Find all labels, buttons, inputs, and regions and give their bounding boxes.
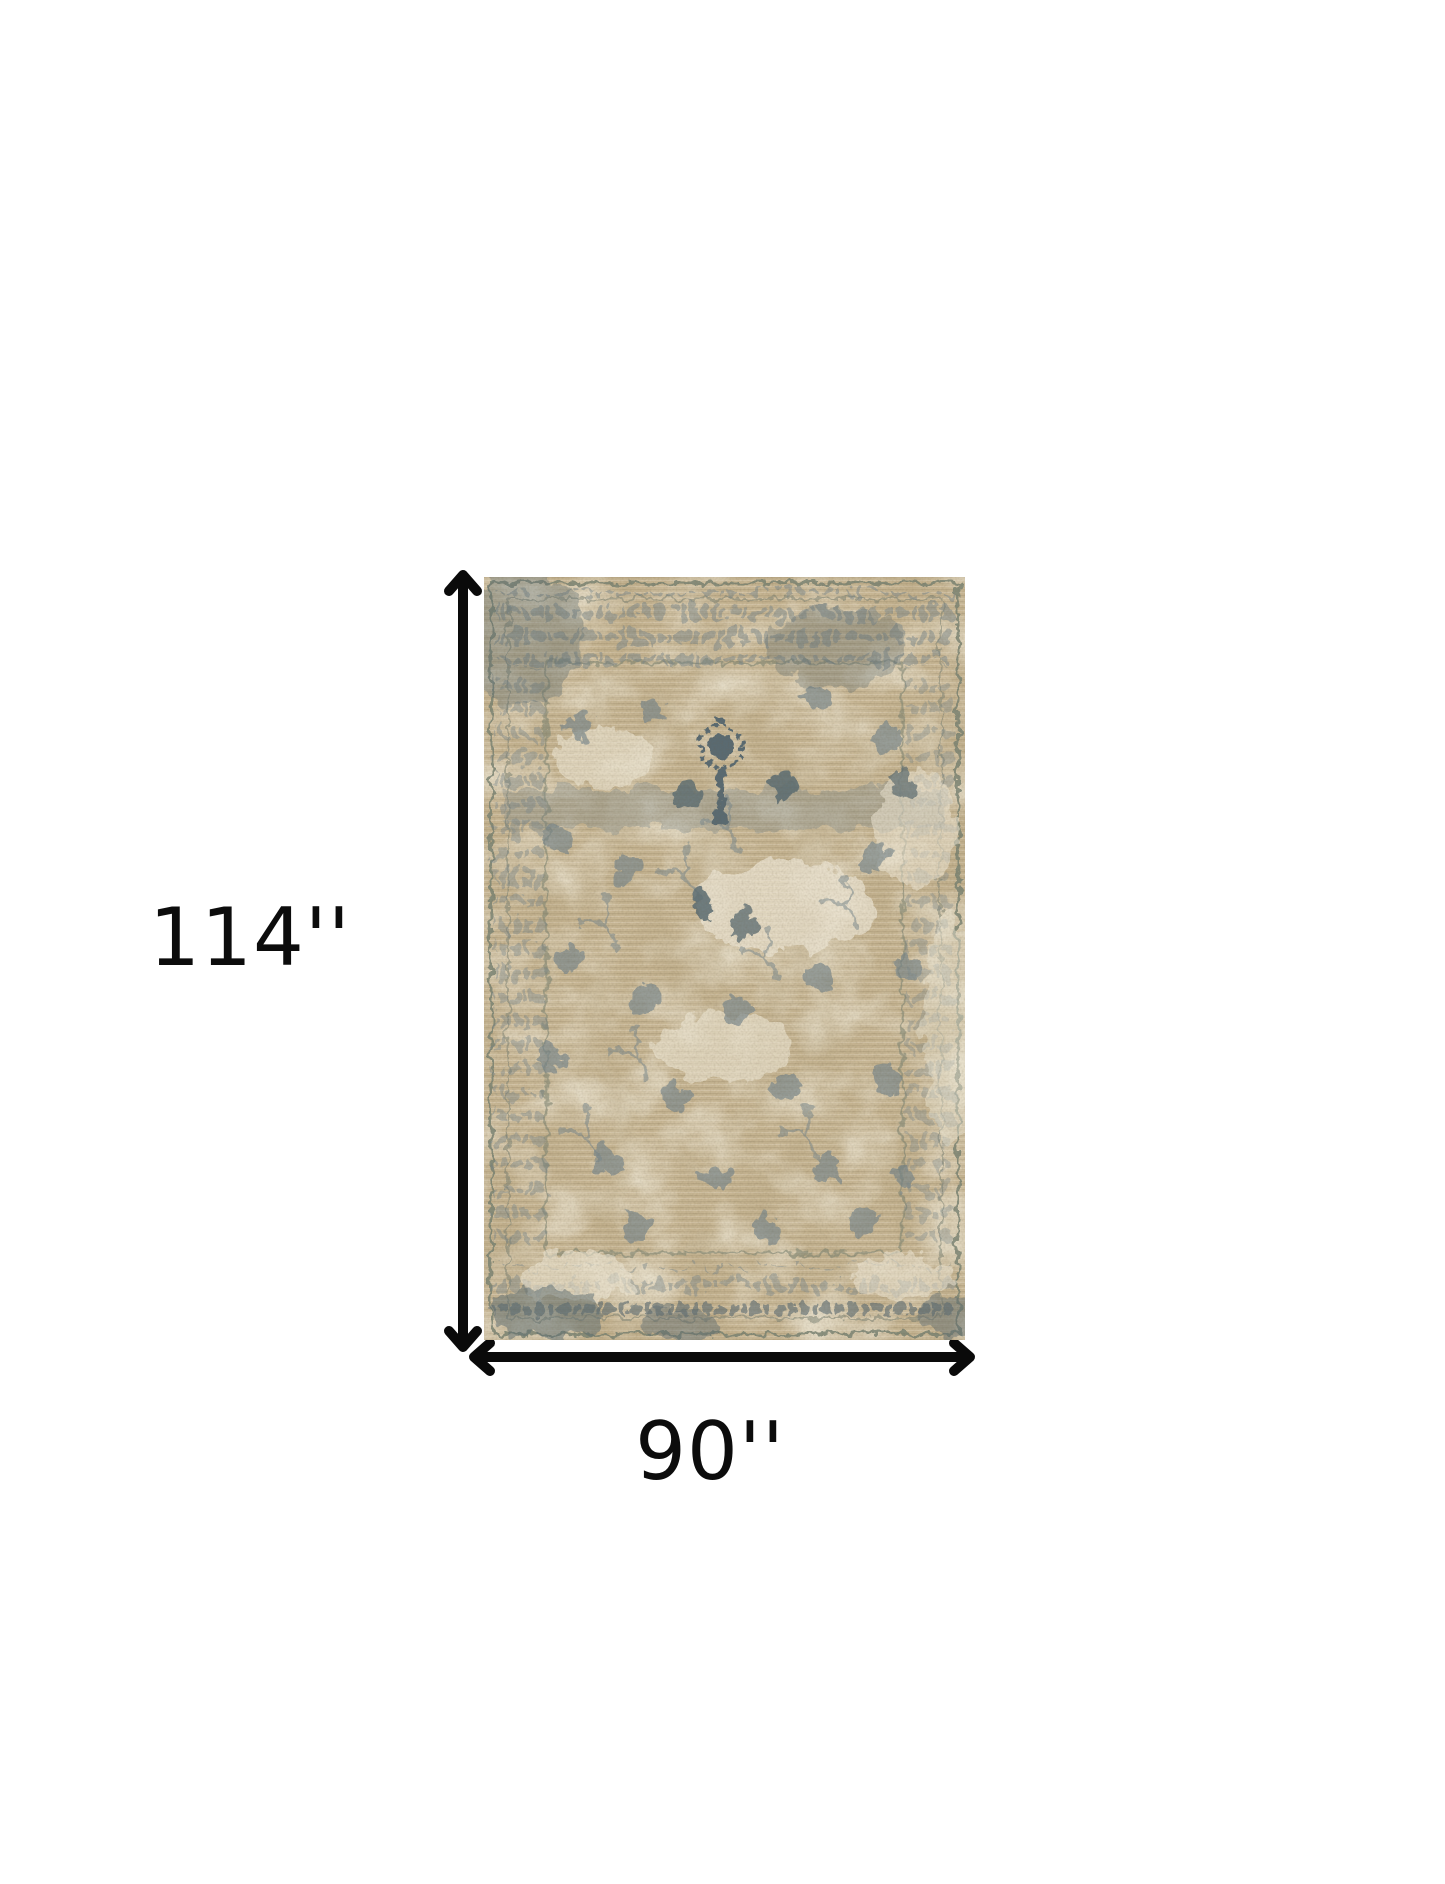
width-dimension-label: 90'' xyxy=(545,1397,875,1507)
product-dimension-diagram: 114'' 90'' xyxy=(0,0,1445,1884)
vertical-dimension-arrow-icon xyxy=(441,563,485,1359)
vertical-arrow-strokes xyxy=(449,575,477,1347)
horizontal-arrow-strokes xyxy=(474,1343,970,1371)
rug-image xyxy=(484,577,965,1340)
height-dimension-label: 114'' xyxy=(80,883,420,993)
horizontal-dimension-arrow-icon xyxy=(462,1335,982,1379)
rug-grain-overlay xyxy=(484,577,965,1340)
